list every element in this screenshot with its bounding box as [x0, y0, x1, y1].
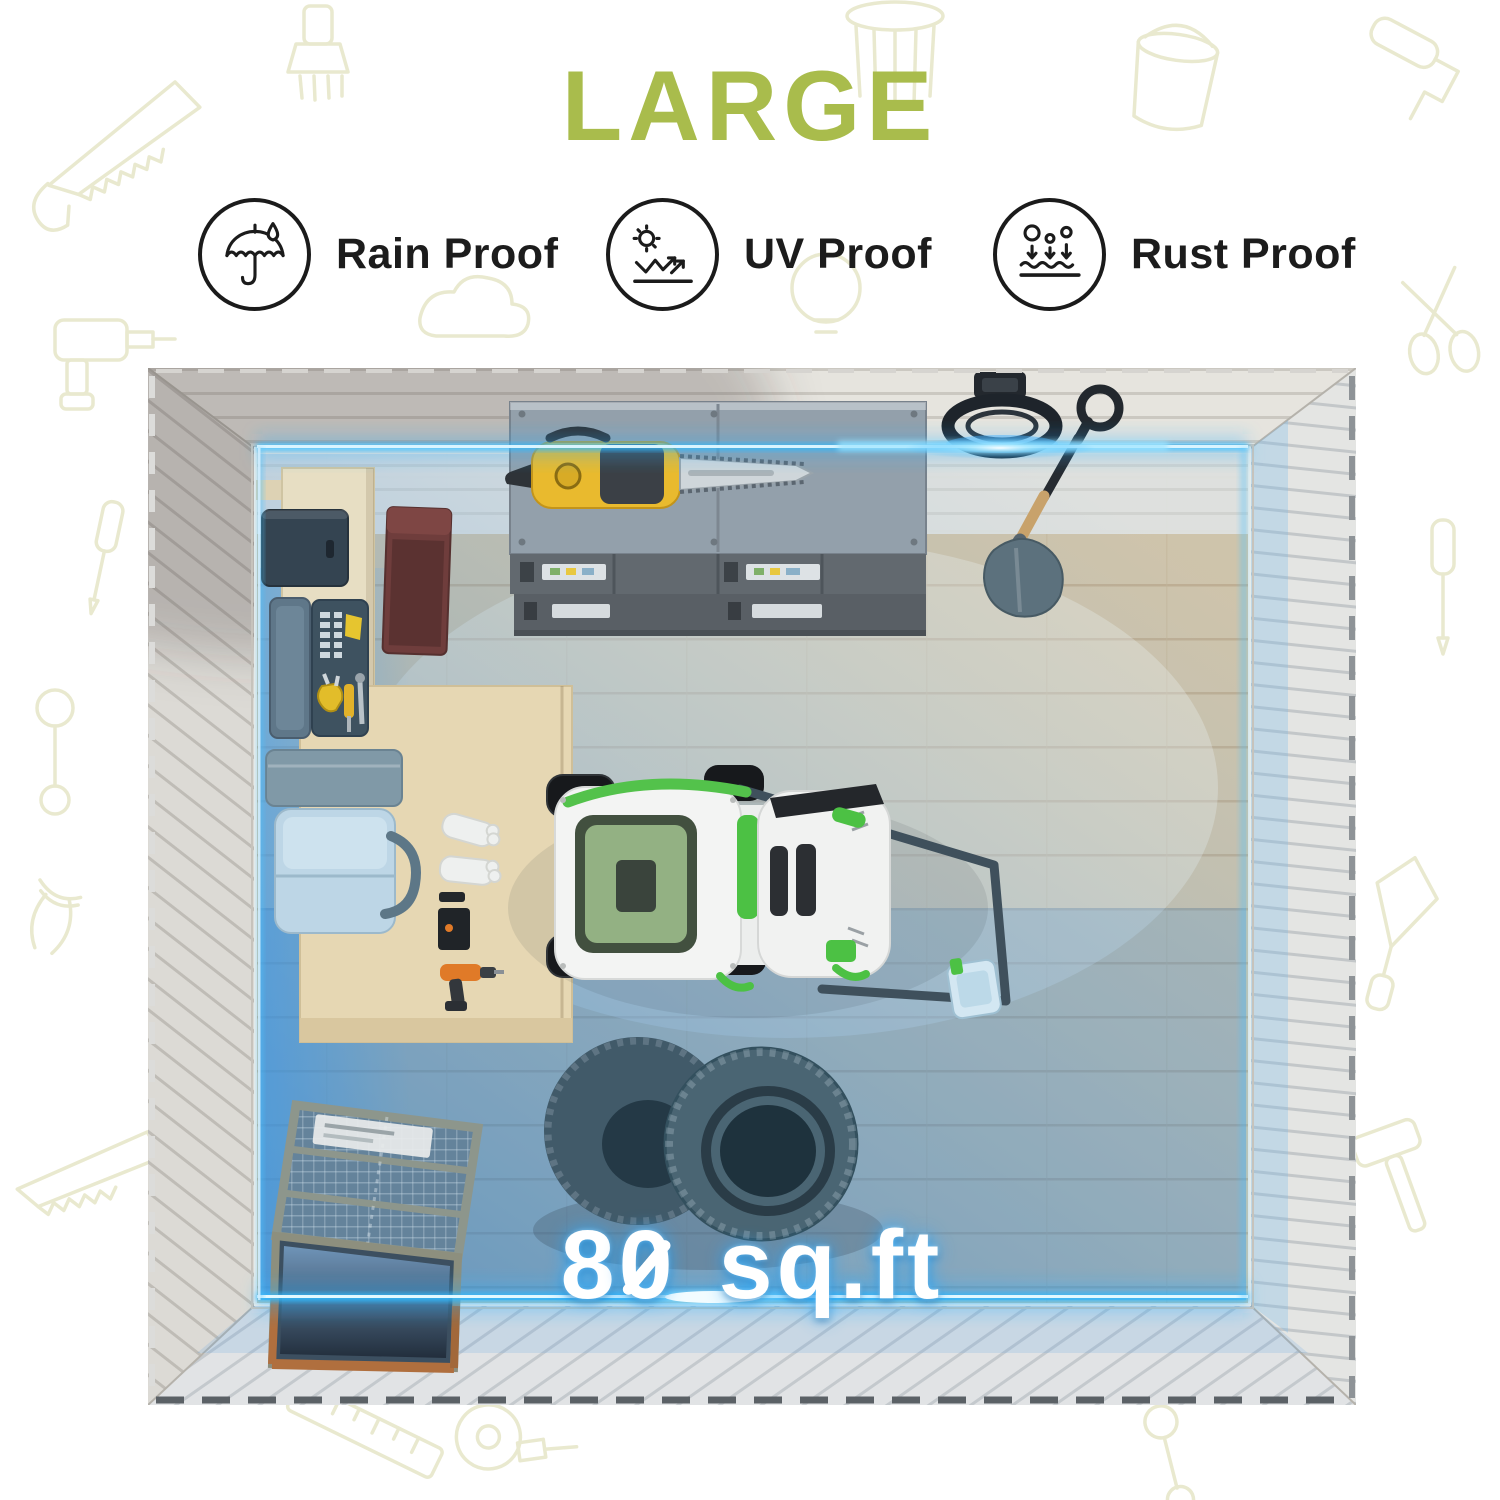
wrench-doodle [1142, 1403, 1196, 1500]
tape-measure-doodle [452, 1393, 578, 1473]
dark-storage-box [262, 510, 348, 586]
scissors-doodle [1394, 266, 1482, 382]
storage-box [266, 750, 402, 806]
wooden-mesh-crate [272, 1105, 478, 1368]
page-title: LARGE [0, 56, 1500, 155]
area-label: 80sq.ft [561, 1216, 944, 1313]
mower-caddy [945, 953, 1002, 1020]
small-tool-bar [439, 892, 465, 902]
feature-rust-proof: Rust Proof [993, 196, 1356, 312]
feature-label: Rust Proof [1131, 230, 1356, 279]
feature-label: UV Proof [744, 230, 932, 279]
feature-label: Rain Proof [336, 230, 558, 279]
screwdriver-doodle [81, 500, 124, 616]
hammer-doodle [1350, 1117, 1449, 1241]
saw-doodle [11, 1130, 168, 1220]
tool-case [438, 908, 470, 950]
rust-particles-surface-icon [993, 198, 1106, 311]
feature-uv-proof: UV Proof [606, 196, 932, 312]
shed-top-view-photo: 80sq.ft [148, 368, 1356, 1405]
open-toolbox [270, 598, 368, 738]
trowel-doodle [1346, 850, 1446, 1017]
red-side-cabinet [382, 507, 451, 655]
sun-uv-reflection-icon [606, 198, 719, 311]
area-unit: sq.ft [719, 1210, 944, 1319]
wrench-doodle [37, 690, 73, 814]
area-digit: 8 [561, 1210, 619, 1319]
feature-rain-proof: Rain Proof [198, 196, 558, 312]
area-digit-slashed-zero: 0 [619, 1216, 677, 1313]
pliers-doodle [20, 880, 82, 956]
cooler-box [275, 809, 416, 933]
umbrella-raindrop-icon [198, 198, 311, 311]
screwdriver-doodle [1432, 520, 1454, 654]
